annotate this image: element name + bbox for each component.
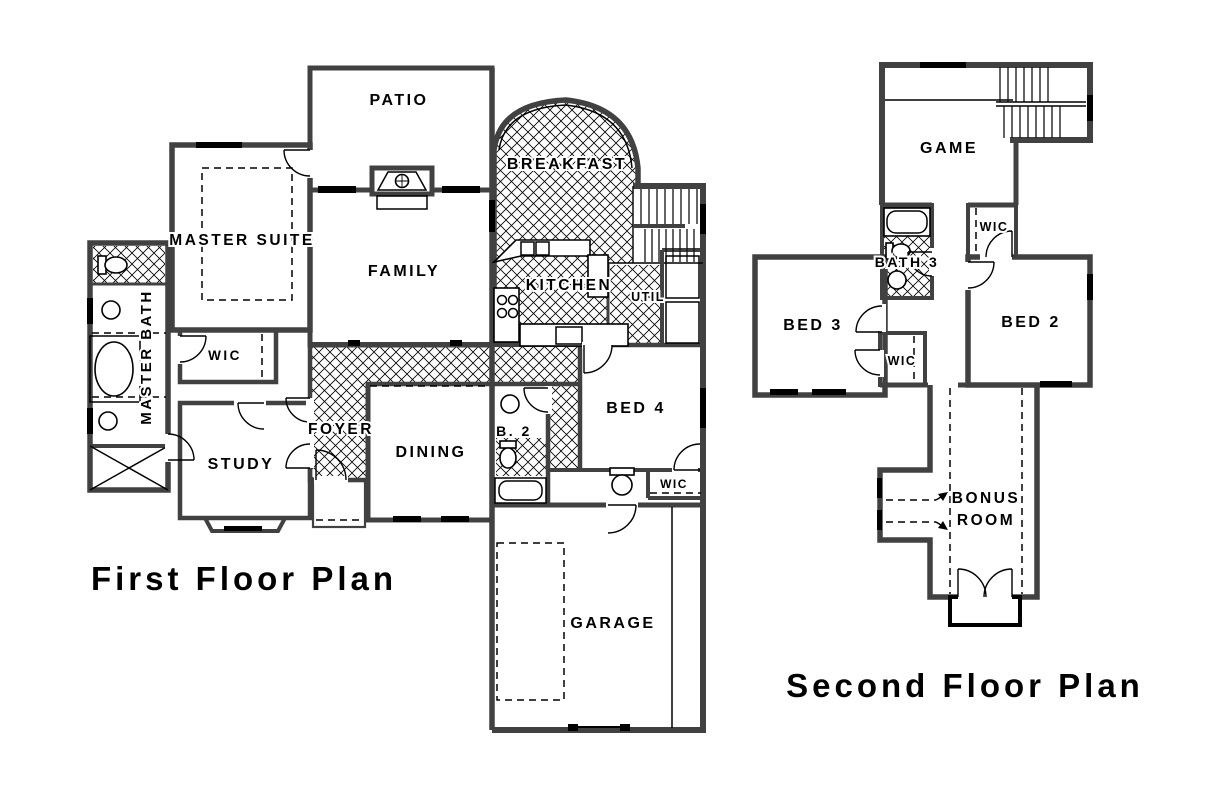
room-label-util: UTIL bbox=[631, 290, 665, 304]
room-label-wic: WIC bbox=[208, 348, 242, 363]
room-label-bed3: BED 3 bbox=[783, 317, 843, 334]
bonus-double-door bbox=[958, 569, 986, 597]
sink-icon bbox=[102, 301, 120, 319]
second-floor-plan: GAME BATH 3 WIC BED 3 BED 2 WIC BONUS RO… bbox=[755, 62, 1144, 704]
shower-x bbox=[90, 446, 168, 490]
toilet-tank bbox=[500, 441, 516, 448]
bathtub-icon bbox=[95, 342, 133, 396]
sink-icon bbox=[99, 412, 117, 430]
roof-arrow bbox=[938, 492, 948, 501]
garage-storage-dashed bbox=[497, 543, 564, 700]
master-bath-fixtures bbox=[90, 256, 168, 490]
room-label-bath2: B. 2 bbox=[496, 423, 532, 439]
room-label-garage: GARAGE bbox=[570, 615, 655, 632]
bonus-stoop bbox=[950, 597, 1020, 625]
room-label-bed4: BED 4 bbox=[606, 400, 666, 417]
room-label-kitchen: KITCHEN bbox=[526, 277, 612, 294]
first-floor-title: First Floor Plan bbox=[91, 560, 397, 597]
floor-plan-drawing: PATIO BREAKFAST MASTER SUITE FAMILY KITC… bbox=[0, 0, 1224, 792]
toilet-icon bbox=[500, 448, 516, 468]
first-floor-plan: PATIO BREAKFAST MASTER SUITE FAMILY KITC… bbox=[87, 68, 706, 731]
room-label-master-bath: MASTER BATH bbox=[138, 289, 155, 425]
bonus-double-door bbox=[984, 569, 1012, 597]
gallery-tile bbox=[310, 343, 580, 384]
toilet-icon bbox=[612, 475, 632, 495]
room-label-bonus-line1: BONUS bbox=[952, 490, 1020, 507]
room-label-foyer: FOYER bbox=[308, 421, 374, 438]
room-label-study: STUDY bbox=[208, 456, 275, 473]
room-label-game: GAME bbox=[920, 140, 978, 157]
staircase-second-floor bbox=[996, 67, 1086, 138]
floor-plan-sheet: PATIO BREAKFAST MASTER SUITE FAMILY KITC… bbox=[0, 0, 1224, 792]
pantry-shelves bbox=[666, 256, 699, 343]
room-label-family: FAMILY bbox=[368, 263, 440, 280]
room-label-bonus-line2: ROOM bbox=[957, 512, 1015, 529]
room-label-bed4-wic: WIC bbox=[660, 477, 688, 491]
sink-icon bbox=[888, 271, 906, 289]
room-label-master-suite: MASTER SUITE bbox=[169, 232, 314, 249]
hall-tile bbox=[548, 384, 580, 470]
room-label-bath3: BATH 3 bbox=[875, 254, 940, 270]
patio-fireplace bbox=[372, 168, 432, 209]
room-label-breakfast: BREAKFAST bbox=[507, 156, 627, 173]
room-label-patio: PATIO bbox=[369, 92, 428, 109]
roof-arrow bbox=[938, 521, 948, 530]
room-label-bed3-wic: WIC bbox=[888, 354, 917, 368]
room-label-bed2-wic: WIC bbox=[980, 220, 1009, 234]
room-label-dining: DINING bbox=[396, 444, 467, 461]
sink-icon bbox=[501, 395, 519, 413]
toilet-tank bbox=[610, 468, 634, 475]
second-floor-title: Second Floor Plan bbox=[786, 667, 1144, 704]
room-label-bed2: BED 2 bbox=[1001, 314, 1061, 331]
toilet-icon bbox=[105, 257, 127, 273]
